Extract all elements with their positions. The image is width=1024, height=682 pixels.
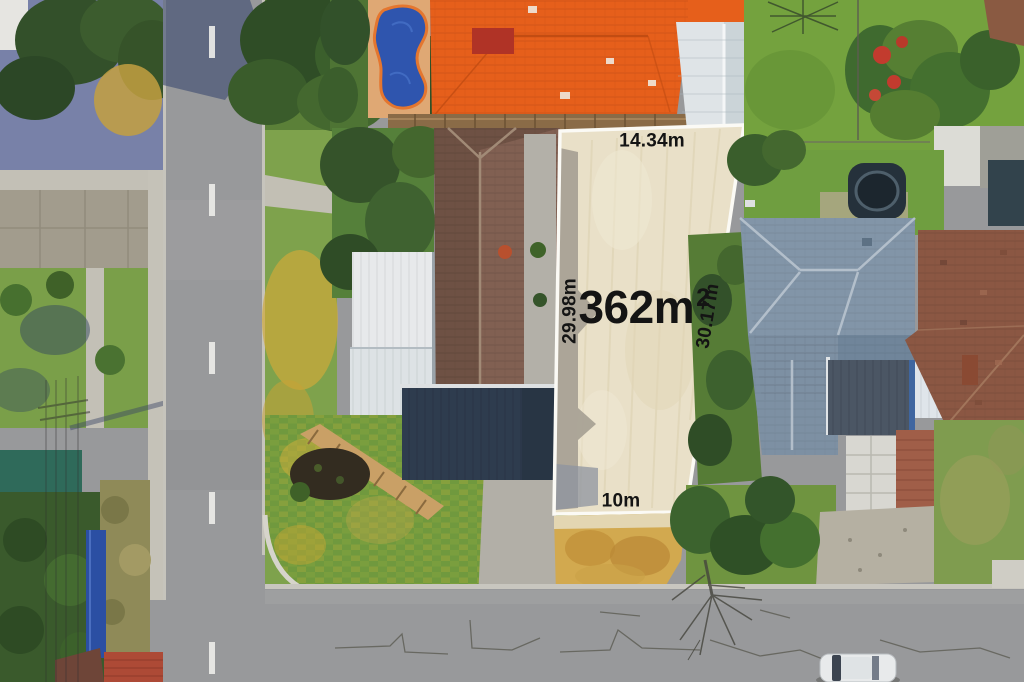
aggregate-driveway (816, 506, 934, 586)
roof-chimney (472, 28, 514, 54)
white-car (816, 654, 900, 682)
lot-area-exponent: 2 (696, 284, 709, 312)
aerial-lot-photo: 14.34m 29.98m 30.17m 10m 362m2 (0, 0, 1024, 682)
aerial-scene (0, 0, 1024, 682)
lot-left-boundary-label: 29.98m (561, 278, 580, 344)
brick-driveway (896, 430, 934, 508)
carport-shadow (554, 464, 598, 510)
driveway (478, 468, 556, 600)
dark-pond (988, 160, 1024, 226)
lot-top-boundary-label: 14.34m (619, 132, 685, 151)
lot-area-value: 362m (578, 281, 694, 333)
lot-bottom-boundary-label: 10m (602, 492, 641, 511)
lot-area-label: 362m2 (578, 280, 709, 334)
